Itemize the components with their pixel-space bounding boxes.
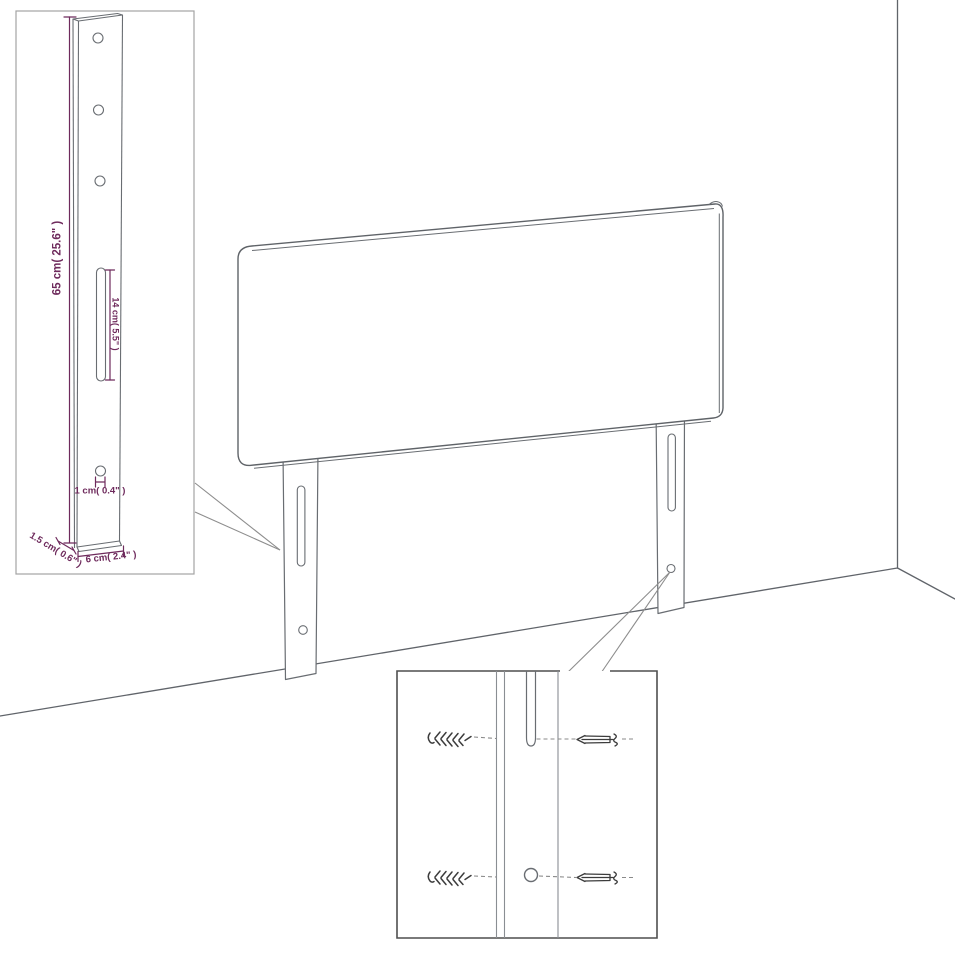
leader-line: [195, 512, 280, 550]
right-leg-slot: [668, 434, 675, 511]
left-leg-slot: [297, 486, 305, 566]
product-dimension-diagram: 65 cm( 25.6" ) 14 cm( 5.5" ) 1 cm( 0.4" …: [0, 0, 955, 955]
leg-hole-lower: [95, 176, 105, 186]
dim-hole-label: 1 cm( 0.4" ): [75, 486, 126, 497]
mounting-detail-leader-lines: [565, 572, 670, 675]
leg-hole-middle: [94, 105, 104, 115]
leg-slot: [97, 268, 106, 381]
panel-outline: [238, 204, 723, 465]
leader-line: [601, 572, 670, 673]
right-leg-hole: [667, 565, 675, 573]
left-leg-hole: [299, 626, 308, 635]
left-leg: [283, 449, 318, 680]
leg-detail-inset: 65 cm( 25.6" ) 14 cm( 5.5" ) 1 cm( 0.4" …: [16, 11, 194, 574]
dim-height-label: 65 cm( 25.6" ): [52, 221, 64, 296]
mounting-detail-inset: [397, 671, 657, 938]
leg-small-hole: [96, 466, 106, 476]
leg-inset-leader-lines: [195, 483, 280, 550]
headboard-panel: [238, 202, 723, 469]
leader-line: [195, 483, 280, 550]
dim-slot-label: 14 cm( 5.5" ): [111, 297, 121, 350]
leg-hole-top: [93, 33, 103, 43]
diagram-canvas: 65 cm( 25.6" ) 14 cm( 5.5" ) 1 cm( 0.4" …: [0, 0, 955, 955]
leader-line: [565, 572, 670, 675]
floor-line-right: [898, 568, 955, 599]
